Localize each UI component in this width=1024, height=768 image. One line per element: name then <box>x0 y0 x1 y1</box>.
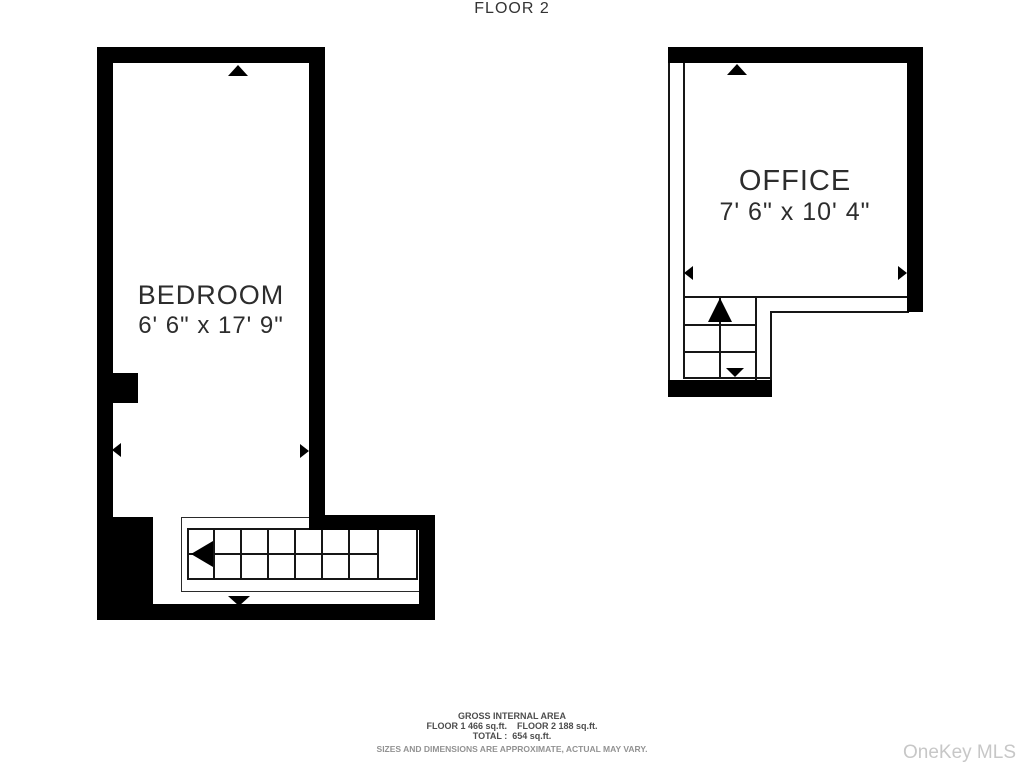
bedroom-dimensions: 6' 6" x 17' 9" <box>103 312 319 340</box>
total-area-line: TOTAL : 654 sq.ft. <box>0 731 1024 741</box>
office-wall-right <box>907 47 923 312</box>
gross-internal-area-title: GROSS INTERNAL AREA <box>0 711 1024 721</box>
bedroom-wall-arrow-right-icon <box>300 444 309 458</box>
bedroom-wall-notch <box>113 373 138 403</box>
office-left-line-outer <box>668 63 670 380</box>
disclaimer-text: SIZES AND DIMENSIONS ARE APPROXIMATE, AC… <box>0 744 1024 754</box>
floor-label: FLOOR 2 <box>0 0 1024 18</box>
office-wall-arrow-right-icon <box>898 266 907 280</box>
bedroom-wall-right <box>309 47 325 517</box>
bedroom-label: BEDROOM <box>113 280 309 310</box>
floor-plan: BEDROOM 6' 6" x 17' 9" OFFICE <box>0 0 1024 768</box>
office-arrow-up-icon <box>727 64 747 75</box>
office-stairs-arrow-down-icon <box>726 368 744 377</box>
bedroom-wall-top <box>97 47 325 63</box>
office-stairs-right-line <box>755 296 757 380</box>
bedroom-ext-wall-right <box>419 515 435 620</box>
bedroom-arrow-down-icon <box>228 596 250 606</box>
office-stair-tread <box>683 324 757 326</box>
office-wall-bottom <box>668 380 772 397</box>
office-wall-arrow-left-icon <box>684 266 693 280</box>
office-landing-vline <box>770 311 772 380</box>
bedroom-ext-wall-top <box>309 515 435 530</box>
footer-area-summary: GROSS INTERNAL AREA FLOOR 1 466 sq.ft. F… <box>0 711 1024 754</box>
office-wall-top <box>668 47 923 63</box>
bedroom-arrow-up-icon <box>228 65 248 76</box>
office-strip-bottom-line <box>770 311 909 313</box>
office-stairs-arrow-up-icon <box>708 298 732 322</box>
floor-areas-line: FLOOR 1 466 sq.ft. FLOOR 2 188 sq.ft. <box>0 721 1024 731</box>
bedroom-corner-block <box>97 517 153 612</box>
office-stair-tread <box>683 351 757 353</box>
office-dimensions: 7' 6" x 10' 4" <box>673 198 917 226</box>
office-label: OFFICE <box>683 165 907 197</box>
stairs-arrow-left-icon <box>191 541 213 567</box>
office-stairs-bottom-line <box>683 377 772 379</box>
bedroom-wall-arrow-left-icon <box>112 443 121 457</box>
stairs-center-line <box>187 553 379 555</box>
watermark-onekey-mls: OneKey MLS <box>903 742 1016 764</box>
